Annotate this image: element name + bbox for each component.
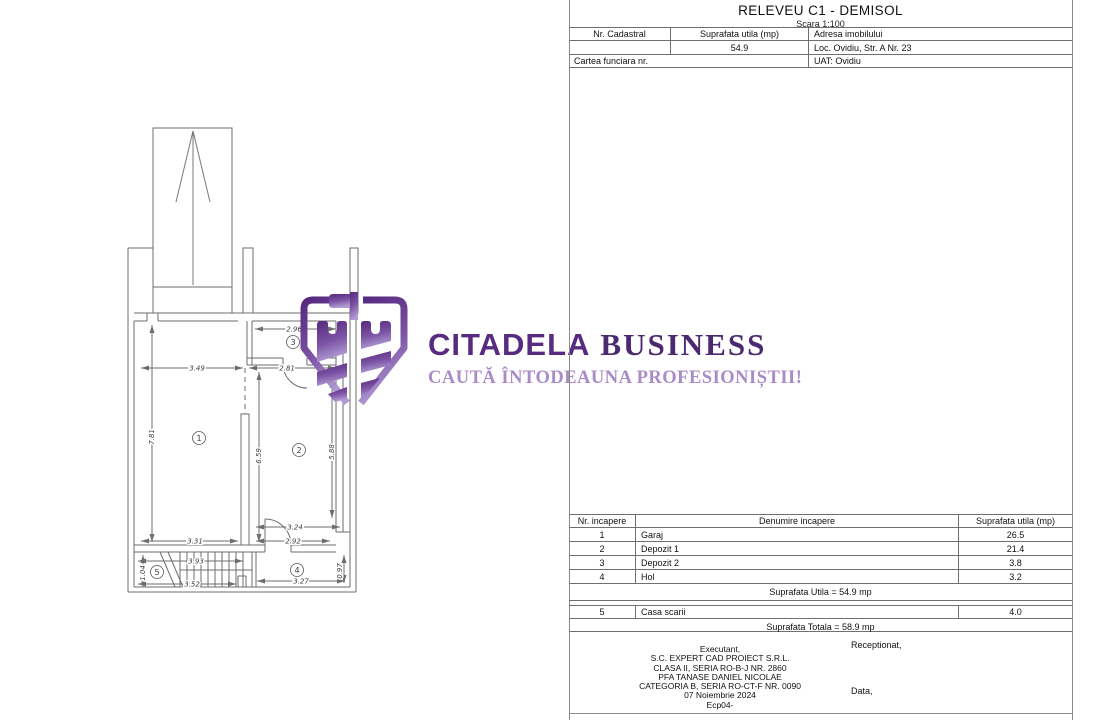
subtotal-row: Suprafata Utila = 54.9 mp <box>569 584 1072 601</box>
citadela-brand-text: CITADELABUSINESS CAUTĂ ÎNTODEAUNA PROFES… <box>428 327 802 389</box>
info-col1-header: Nr. Cadastral <box>569 28 670 40</box>
room-number: 3 <box>290 338 295 347</box>
info-col2-value: 54.9 <box>670 41 808 54</box>
brand-name-secondary: BUSINESS <box>600 327 766 362</box>
room-name: Depozit 2 <box>635 556 958 569</box>
dim-label: 6.59 <box>255 448 263 464</box>
rooms-table: Nr. incapere Denumire incapere Suprafata… <box>569 514 1072 632</box>
room-name: Garaj <box>635 528 958 541</box>
room-area: 26.5 <box>958 528 1072 541</box>
executant-line: Ecp04- <box>569 701 871 710</box>
room-nr: 4 <box>569 570 635 583</box>
room-number: 2 <box>296 446 301 455</box>
total-row: Suprafata Totala = 58.9 mp <box>569 619 1072 632</box>
panel-right-border <box>1072 0 1073 720</box>
scanned-document-page: 3.49 2.81 2.96 3.31 3.24 2.92 3.93 3.52 … <box>0 0 1096 720</box>
dim-label: 3.49 <box>189 365 205 373</box>
info-col3-value: Loc. Ovidiu, Str. A Nr. 23 <box>808 41 1072 54</box>
dim-label: 1.04 <box>139 565 147 581</box>
rooms-header-area: Suprafata utila (mp) <box>958 515 1072 527</box>
info-col2-header: Suprafata utila (mp) <box>670 28 808 40</box>
cartea-funciara-label: Cartea funciara nr. <box>569 55 808 67</box>
room-nr: 5 <box>569 606 635 618</box>
room-area: 3.8 <box>958 556 1072 569</box>
document-title: RELEVEU C1 - DEMISOL <box>569 3 1072 18</box>
info-col3-header: Adresa imobilului <box>808 28 1072 40</box>
room-nr: 2 <box>569 542 635 555</box>
uat-value: UAT: Ovidiu <box>808 55 1072 67</box>
cadastral-info-table: Nr. Cadastral Suprafata utila (mp) Adres… <box>569 27 1072 68</box>
room-area: 3.2 <box>958 570 1072 583</box>
info-value-row: 54.9 Loc. Ovidiu, Str. A Nr. 23 <box>569 41 1072 55</box>
executant-block: Executant, S.C. EXPERT CAD PROIECT S.R.L… <box>569 645 871 710</box>
dim-label: 3.93 <box>188 558 204 566</box>
brand-name: CITADELABUSINESS <box>428 327 802 363</box>
ramp-arrow <box>176 131 210 285</box>
panel-bottom-border <box>569 713 1073 714</box>
room-nr: 1 <box>569 528 635 541</box>
data-label: Data, <box>851 686 873 696</box>
info-col1-value <box>569 41 670 54</box>
room-name: Hol <box>635 570 958 583</box>
table-row: 2 Depozit 1 21.4 <box>569 542 1072 556</box>
table-row: 1 Garaj 26.5 <box>569 528 1072 542</box>
dim-label: 7.81 <box>148 429 156 445</box>
rooms-header-row: Nr. incapere Denumire incapere Suprafata… <box>569 514 1072 528</box>
dim-label: 3.31 <box>187 538 203 546</box>
room-name: Depozit 1 <box>635 542 958 555</box>
brand-tagline: CAUTĂ ÎNTODEAUNA PROFESIONIȘTII! <box>428 368 802 389</box>
room-area: 21.4 <box>958 542 1072 555</box>
citadela-logo-icon <box>296 290 412 426</box>
rooms-header-nr: Nr. incapere <box>569 515 635 527</box>
dim-label: 2.92 <box>285 538 301 546</box>
receptionat-label: Receptionat, <box>851 640 902 650</box>
rooms-header-name: Denumire incapere <box>635 515 958 527</box>
dim-label: 2.81 <box>279 365 295 373</box>
room-nr: 3 <box>569 556 635 569</box>
table-row: 5 Casa scarii 4.0 <box>569 605 1072 619</box>
castle-flag <box>317 292 391 402</box>
info-header-row: Nr. Cadastral Suprafata utila (mp) Adres… <box>569 27 1072 41</box>
room-number: 4 <box>294 566 299 575</box>
table-row: 4 Hol 3.2 <box>569 570 1072 584</box>
info-cf-row: Cartea funciara nr. UAT: Ovidiu <box>569 55 1072 68</box>
dim-label: 3.24 <box>287 524 303 532</box>
room-number: 1 <box>196 434 201 443</box>
room-name: Casa scarii <box>635 606 958 618</box>
brand-name-primary: CITADELA <box>428 327 590 362</box>
room-number: 5 <box>154 568 159 577</box>
dim-label: 5.88 <box>328 444 336 460</box>
dim-label: 3.52 <box>184 581 200 589</box>
room-area: 4.0 <box>958 606 1072 618</box>
dim-label: 3.27 <box>293 578 309 586</box>
dim-label: 0.97 <box>336 563 344 579</box>
table-row: 3 Depozit 2 3.8 <box>569 556 1072 570</box>
